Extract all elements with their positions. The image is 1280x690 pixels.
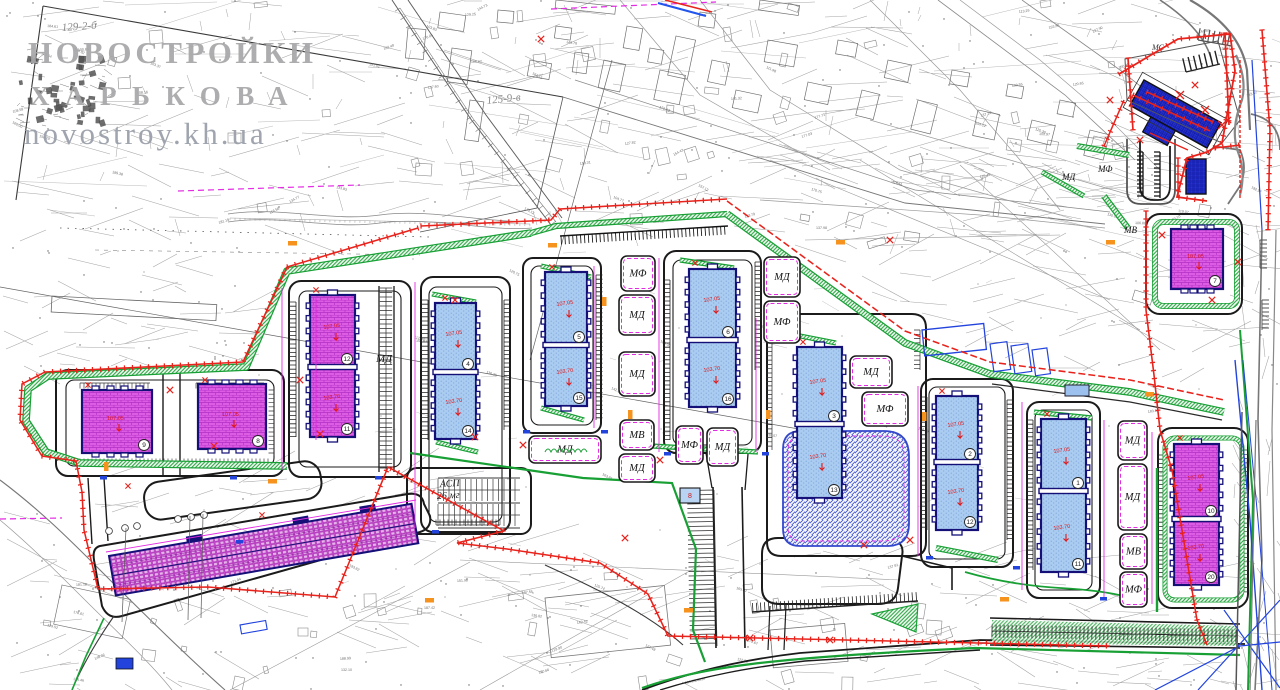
svg-text:МВ: МВ bbox=[1123, 225, 1137, 235]
svg-text:181.18: 181.18 bbox=[76, 583, 87, 587]
svg-text:МД: МД bbox=[628, 463, 646, 474]
svg-text:ХАРЬКОВА: ХАРЬКОВА bbox=[30, 81, 303, 111]
svg-text:МФ: МФ bbox=[876, 404, 894, 415]
svg-text:МД: МД bbox=[1124, 492, 1142, 503]
svg-text:МД: МД bbox=[628, 369, 646, 380]
svg-text:8: 8 bbox=[256, 438, 260, 445]
svg-text:191.32: 191.32 bbox=[731, 96, 742, 101]
svg-text:10: 10 bbox=[1207, 508, 1215, 515]
svg-text:129-2-б: 129-2-б bbox=[61, 20, 97, 34]
svg-text:100.97: 100.97 bbox=[1039, 132, 1050, 137]
svg-text:9: 9 bbox=[142, 442, 146, 449]
svg-text:12: 12 bbox=[343, 356, 351, 363]
svg-text:188.99: 188.99 bbox=[340, 656, 351, 661]
svg-text:МД: МД bbox=[1061, 172, 1076, 182]
svg-text:МВ: МВ bbox=[1125, 547, 1142, 558]
svg-text:187.42: 187.42 bbox=[424, 606, 435, 610]
svg-text:4: 4 bbox=[466, 361, 470, 368]
svg-text:МФ: МФ bbox=[773, 317, 791, 328]
svg-text:МВ: МВ bbox=[628, 430, 645, 441]
svg-text:АСП: АСП bbox=[439, 478, 461, 490]
svg-text:107.05: 107.05 bbox=[107, 416, 124, 422]
svg-text:novostroy.kh.ua: novostroy.kh.ua bbox=[24, 116, 267, 151]
svg-text:11: 11 bbox=[344, 426, 351, 433]
svg-text:7: 7 bbox=[1213, 278, 1217, 285]
svg-text:151.98: 151.98 bbox=[457, 578, 468, 583]
svg-text:107.05: 107.05 bbox=[222, 412, 239, 418]
svg-text:129.25: 129.25 bbox=[465, 12, 476, 17]
svg-text:20: 20 bbox=[1207, 574, 1215, 581]
svg-text:2: 2 bbox=[968, 451, 972, 458]
svg-text:МД: МД bbox=[773, 272, 791, 283]
svg-text:МД: МД bbox=[714, 442, 732, 453]
svg-text:5: 5 bbox=[577, 334, 581, 341]
svg-text:16: 16 bbox=[724, 396, 732, 403]
svg-text:НОВОСТРОЙКИ: НОВОСТРОЙКИ bbox=[28, 35, 317, 70]
svg-text:12: 12 bbox=[966, 519, 974, 526]
svg-text:11: 11 bbox=[1075, 561, 1082, 568]
svg-text:13: 13 bbox=[830, 487, 838, 494]
svg-text:14: 14 bbox=[464, 428, 472, 435]
svg-text:107.05: 107.05 bbox=[1187, 254, 1204, 260]
svg-text:1: 1 bbox=[1076, 480, 1080, 487]
svg-text:6: 6 bbox=[726, 329, 730, 336]
svg-text:МФ: МФ bbox=[1097, 164, 1113, 174]
svg-text:165.62: 165.62 bbox=[471, 60, 482, 64]
svg-text:МД: МД bbox=[375, 353, 393, 365]
svg-text:3: 3 bbox=[832, 413, 836, 420]
svg-text:МФ: МФ bbox=[680, 440, 698, 451]
svg-text:132.10: 132.10 bbox=[341, 668, 352, 672]
svg-text:МД: МД bbox=[862, 367, 880, 378]
svg-text:МД: МД bbox=[1124, 436, 1142, 447]
svg-text:15: 15 bbox=[575, 395, 583, 402]
svg-text:МФ: МФ bbox=[629, 269, 647, 280]
svg-text:8: 8 bbox=[688, 493, 692, 500]
svg-text:МД: МД bbox=[628, 310, 646, 321]
svg-text:137.98: 137.98 bbox=[816, 226, 827, 230]
svg-text:МФ: МФ bbox=[1124, 585, 1142, 596]
